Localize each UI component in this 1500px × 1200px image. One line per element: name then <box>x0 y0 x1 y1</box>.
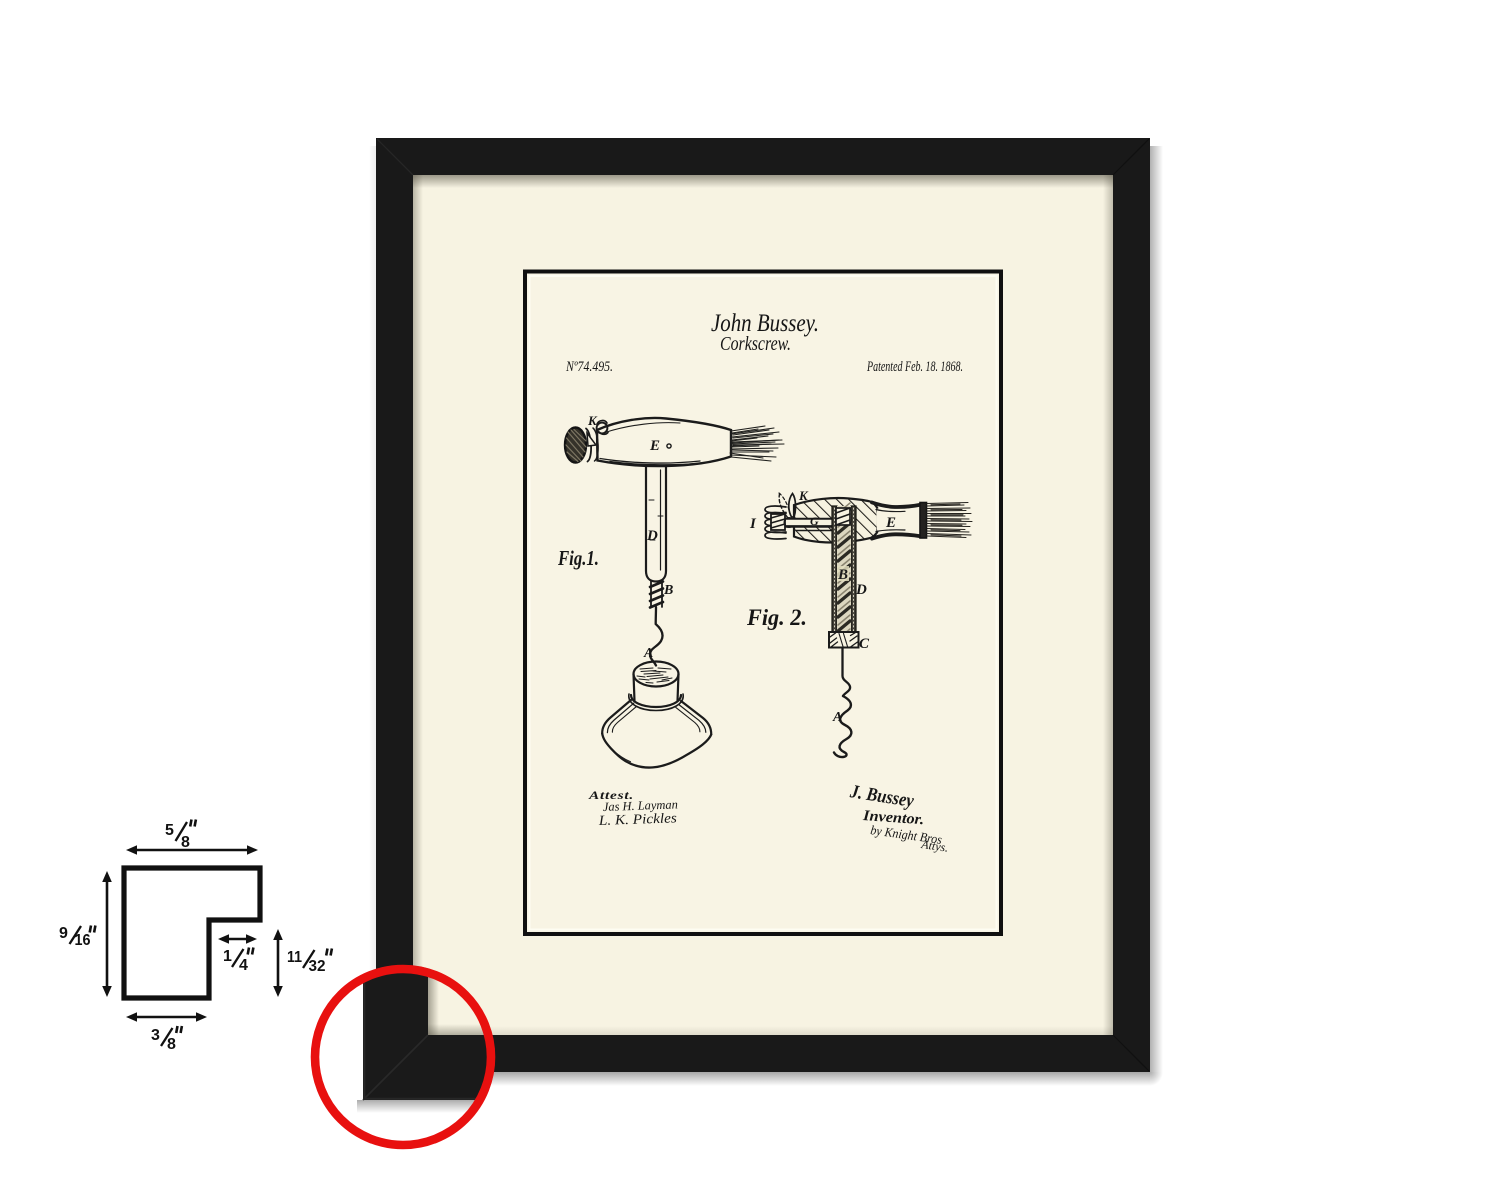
svg-text:5: 5 <box>165 822 174 839</box>
svg-text:E: E <box>649 438 660 454</box>
svg-text:32: 32 <box>309 958 326 975</box>
svg-text:8: 8 <box>181 834 190 851</box>
svg-text:A: A <box>832 710 842 725</box>
svg-text:Patented Feb. 18. 1868.: Patented Feb. 18. 1868. <box>866 359 963 375</box>
svg-text:Fig.1.: Fig.1. <box>557 546 599 570</box>
svg-text:4: 4 <box>239 957 248 974</box>
svg-text:B: B <box>663 583 673 598</box>
svg-text:A: A <box>643 646 653 661</box>
svg-text:G: G <box>810 514 819 528</box>
svg-text:16: 16 <box>75 932 91 949</box>
svg-text:L. K. Pickles: L. K. Pickles <box>598 811 678 829</box>
svg-text:C: C <box>859 636 870 652</box>
svg-text:9: 9 <box>59 925 68 942</box>
svg-text:Corkscrew.: Corkscrew. <box>720 333 791 355</box>
svg-text:3: 3 <box>151 1027 160 1044</box>
svg-text:I: I <box>749 516 757 532</box>
svg-text:11: 11 <box>287 949 302 966</box>
svg-text:B: B <box>837 567 848 583</box>
svg-text:8: 8 <box>167 1036 176 1053</box>
svg-text:Nº74.495.: Nº74.495. <box>565 359 613 375</box>
svg-text:1: 1 <box>223 948 232 965</box>
svg-text:K: K <box>587 413 598 428</box>
svg-text:K: K <box>798 488 809 503</box>
svg-text:Fig. 2.: Fig. 2. <box>746 605 807 630</box>
svg-text:D: D <box>855 582 867 598</box>
svg-text:D: D <box>646 528 658 544</box>
svg-text:E: E <box>885 515 896 531</box>
